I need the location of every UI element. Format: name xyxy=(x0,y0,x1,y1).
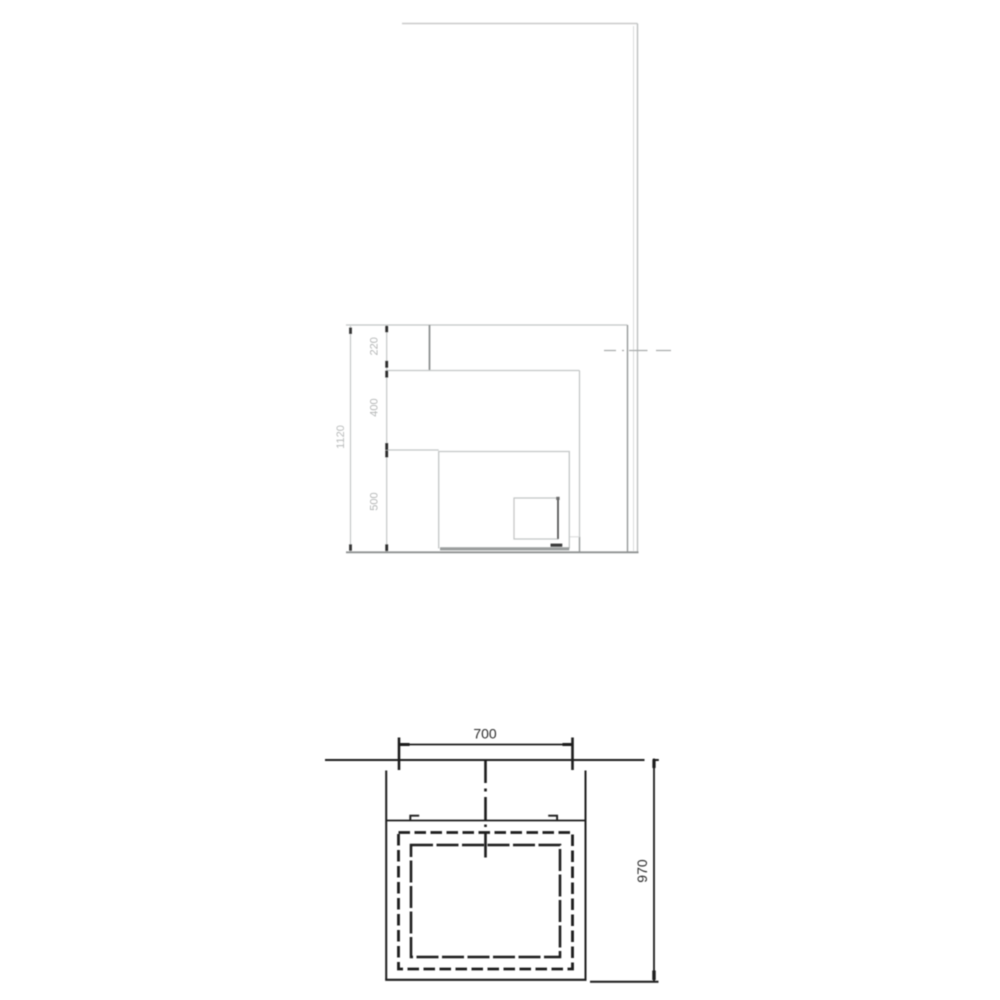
svg-text:1120: 1120 xyxy=(335,425,347,449)
svg-text:220: 220 xyxy=(368,337,380,355)
svg-text:400: 400 xyxy=(368,398,380,416)
svg-text:970: 970 xyxy=(634,859,650,883)
svg-text:500: 500 xyxy=(368,492,380,510)
svg-text:700: 700 xyxy=(473,726,497,742)
